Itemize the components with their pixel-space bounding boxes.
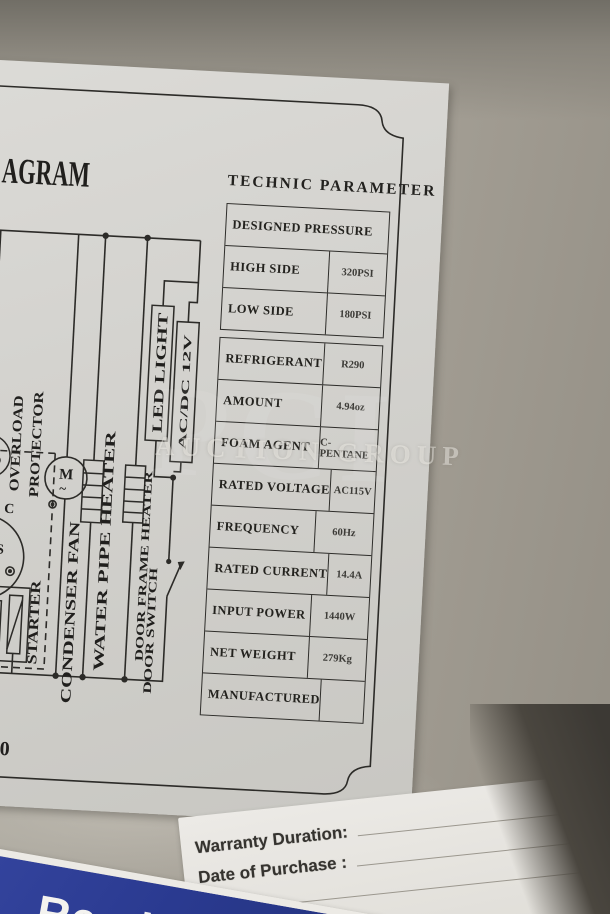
overload-label-line2: PROTECTOR — [26, 391, 47, 498]
row-label: MANUFACTURED — [201, 686, 320, 707]
overload-label-line1: OVERLOAD — [6, 395, 26, 492]
row-label: INPUT POWER — [206, 603, 311, 623]
row-label: HIGH SIDE — [224, 259, 329, 279]
label-footnote: . 120 — [0, 736, 10, 760]
row-value: 279Kg — [307, 637, 367, 681]
row-label: FREQUENCY — [210, 519, 315, 539]
row-value: 180PSI — [325, 293, 385, 337]
row-label: NET WEIGHT — [204, 644, 309, 664]
ready-text: Ready — [33, 884, 183, 914]
pressure-block: DESIGNED PRESSURE HIGH SIDE 320PSI LOW S… — [220, 203, 390, 338]
photo-frame: AGRAM . 120 — [0, 0, 610, 914]
row-value — [319, 680, 365, 723]
row-label: DESIGNED PRESSURE — [226, 217, 373, 240]
row-value: 320PSI — [327, 251, 387, 295]
water-pipe-heater-label: WATER PIPE HEATER — [91, 430, 120, 671]
row-value: 1440W — [309, 595, 369, 639]
purchase-date-label: Date of Purchase : — [197, 853, 348, 888]
table-row: MANUFACTURED — [201, 672, 365, 722]
terminal-c-label: C — [4, 502, 15, 518]
row-label: LOW SIDE — [222, 301, 327, 321]
table-row: LOW SIDE 180PSI — [221, 287, 385, 337]
row-value: 60Hz — [313, 511, 373, 555]
row-value: 14.4A — [326, 554, 371, 597]
row-label: RATED CURRENT — [208, 561, 328, 582]
corner-shadow — [470, 704, 610, 914]
terminal-s-label: S — [0, 542, 4, 557]
diagram-title: AGRAM — [1, 150, 91, 195]
door-switch-symbol — [164, 559, 185, 598]
starter-label: STARTER — [25, 579, 44, 665]
motor-wave-label: ~ — [59, 481, 67, 496]
warranty-duration-label: Warranty Duration: — [194, 822, 349, 858]
